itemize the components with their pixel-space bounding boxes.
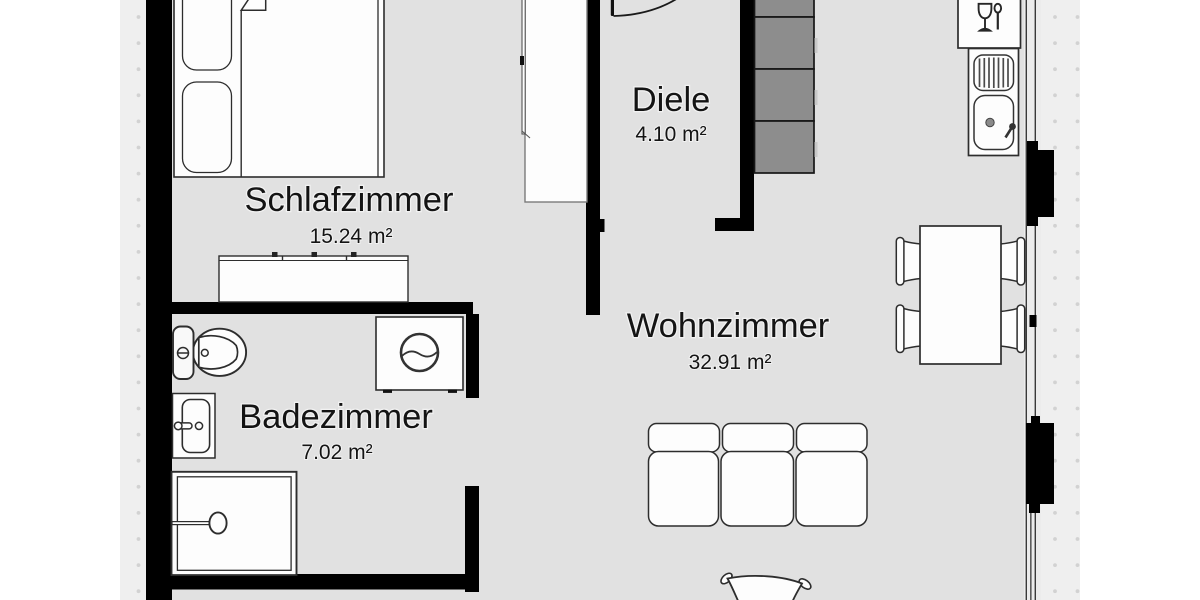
svg-text:15.24 m²: 15.24 m² xyxy=(310,225,393,248)
svg-text:32.91 m²: 32.91 m² xyxy=(689,351,772,374)
svg-text:Badezimmer: Badezimmer xyxy=(239,398,433,436)
svg-text:Wohnzimmer: Wohnzimmer xyxy=(627,307,830,345)
svg-text:7.02 m²: 7.02 m² xyxy=(301,441,372,464)
svg-text:Schlafzimmer: Schlafzimmer xyxy=(245,181,454,219)
svg-text:Diele: Diele xyxy=(632,81,711,119)
svg-text:4.10 m²: 4.10 m² xyxy=(635,123,706,146)
